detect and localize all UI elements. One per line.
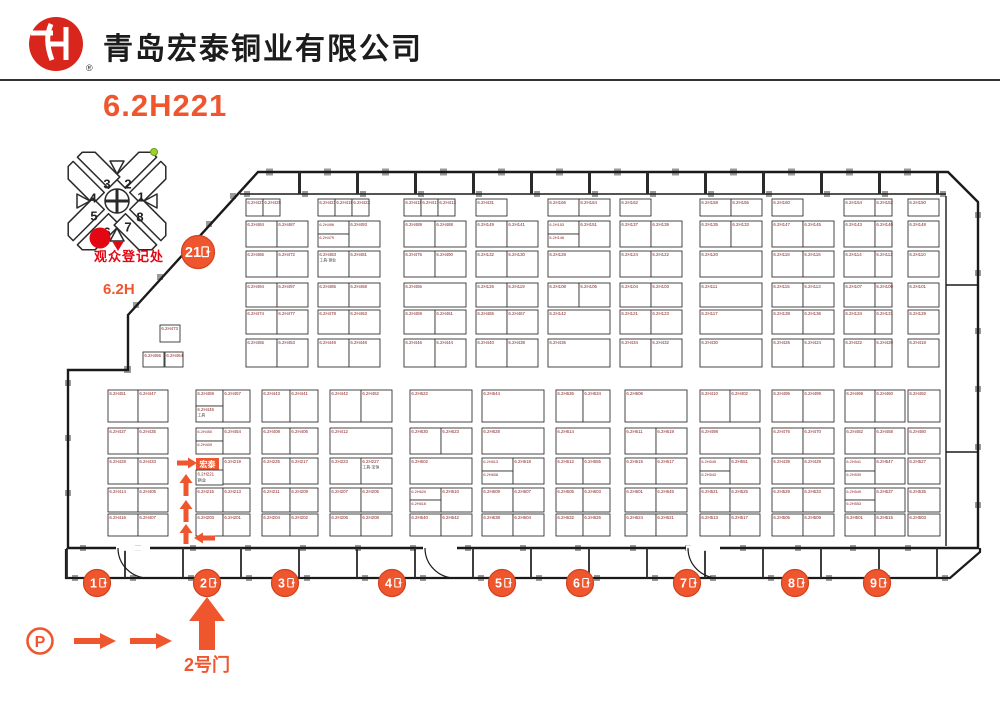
booth-cell: 6.2H164 bbox=[579, 199, 610, 216]
booth-cell: 6.2H128 bbox=[548, 251, 610, 277]
booth-cell: 6.2H461 bbox=[435, 310, 466, 334]
booth-cell: 6.2H632 bbox=[556, 514, 583, 536]
booth-cell: 6.2H478 bbox=[318, 310, 349, 334]
booth-cell: 6.2H103 bbox=[651, 283, 682, 307]
booth-cell: 6.2H418 bbox=[908, 339, 939, 367]
booth-label: 6.2H153 bbox=[549, 222, 564, 227]
booth-cell: 6.2H123 bbox=[651, 310, 682, 334]
booth-label: 6.2H150 bbox=[909, 200, 926, 205]
booth-label: 6.2H607 bbox=[514, 489, 531, 494]
booth-label: 6.2H535 bbox=[909, 489, 926, 494]
booth-label: 6.2H547 bbox=[876, 459, 893, 464]
booth-cell: 6.2H604 bbox=[513, 514, 544, 536]
booth-cell: 6.2H467 bbox=[507, 310, 538, 334]
booth-label: 6.2H156 bbox=[732, 200, 749, 205]
booth-label: 6.2H630 bbox=[411, 429, 428, 434]
gate-marker-8: 8 bbox=[782, 570, 809, 597]
booth-cell: 6.2H466 bbox=[143, 352, 164, 367]
booth-cell: 6.2H419 bbox=[335, 199, 354, 216]
page-title: 6.2H221 bbox=[103, 88, 227, 124]
booth-label: 6.2H632 bbox=[557, 515, 574, 520]
booth-cell: 6.2H535 bbox=[908, 488, 940, 512]
booth-cell: 6.2H121 bbox=[620, 310, 651, 334]
booth-cell: 6.2H457 bbox=[223, 390, 250, 422]
booth-label: 6.2H475 bbox=[405, 252, 422, 257]
booth-cell: 6.2H644 bbox=[482, 390, 544, 422]
trademark-symbol: ® bbox=[86, 63, 93, 73]
booth-cell: 6.2H455 bbox=[246, 339, 277, 367]
booth-label: 6.2H145 bbox=[804, 222, 821, 227]
booth-label: 6.2H457 bbox=[224, 391, 241, 396]
booth-label: 6.2H459 bbox=[405, 311, 422, 316]
booth-cell: 6.2H620 bbox=[410, 488, 441, 500]
booth-cell: 6.2H417 bbox=[421, 199, 440, 216]
booth-cell: 6.2H134 bbox=[844, 310, 875, 334]
booth-label: 6.2H616 bbox=[411, 501, 426, 506]
current-hall-dot bbox=[90, 228, 111, 249]
booth-label: 6.2H141 bbox=[508, 222, 525, 227]
booth-cell: 6.2H431 bbox=[476, 199, 507, 216]
booth-cell: 6.2H537 bbox=[875, 488, 905, 512]
booth-label: 6.2H201 bbox=[224, 515, 241, 520]
gate-marker-7: 7 bbox=[674, 570, 701, 597]
booth-cell: 6.2H124 bbox=[620, 251, 651, 277]
booth-cell: 6.2H541 bbox=[845, 458, 875, 471]
booth-label: 6.2H454 bbox=[224, 429, 241, 434]
booth-label: 6.2H138 bbox=[773, 311, 790, 316]
gate-marker-4: 4 bbox=[379, 570, 406, 597]
booth-label: 6.2H439 bbox=[773, 459, 790, 464]
booth-label: 6.2H601 bbox=[626, 489, 643, 494]
booth-label: 6.2H456 bbox=[405, 284, 422, 289]
booth-label: 6.2H420 bbox=[876, 340, 893, 345]
booth-cell: 6.2H428 bbox=[108, 458, 138, 484]
booth-cell: 6.2H421 bbox=[318, 199, 337, 216]
booth-cell: 6.2H412 bbox=[330, 428, 392, 454]
booth-cell: 6.2H203 bbox=[196, 514, 223, 536]
booth-label: 6.2H418 bbox=[909, 340, 926, 345]
booth-cell: 6.2H472 bbox=[277, 251, 308, 277]
booth-label: 6.2H451 bbox=[109, 391, 126, 396]
booth-cell: 6.2H609 bbox=[482, 488, 513, 512]
booth-cell: 6.2H115 bbox=[772, 283, 803, 307]
booth-cell: 6.2H425 bbox=[263, 199, 282, 216]
booth-label: 6.2H143 bbox=[845, 222, 862, 227]
booth-label: 6.2H477 bbox=[278, 311, 295, 316]
booth-label: 6.2H440 bbox=[477, 340, 494, 345]
booth-label: 6.2H612 bbox=[557, 459, 574, 464]
minimap-hall-3: 3 bbox=[103, 177, 110, 192]
booth-cell: 6.2H463 bbox=[349, 310, 380, 334]
booth-cell: 6.2H146 bbox=[548, 234, 579, 247]
booth-label: 6.2H131 bbox=[876, 311, 893, 316]
booth-cell: 6.2H110 bbox=[908, 251, 939, 277]
booth-label: 6.2H466 bbox=[144, 353, 161, 358]
minimap: 12345678 观众登记处 6.2H bbox=[62, 146, 172, 298]
booth-cell: 6.2H553 bbox=[845, 500, 875, 512]
booth-cell: 6.2H487 bbox=[277, 221, 308, 247]
booth-label: 6.2H486 bbox=[247, 252, 264, 257]
booth-label: 6.2H624 bbox=[626, 515, 643, 520]
booth-cell: 6.2H435 bbox=[138, 428, 168, 454]
route-arrow-up-3 bbox=[180, 524, 193, 544]
booth-label: 6.2H545 bbox=[701, 459, 716, 464]
booth-label: 6.2H112 bbox=[876, 252, 893, 257]
booth-label: 6.2H636 bbox=[557, 391, 574, 396]
booth-cell: 6.2H545 bbox=[700, 458, 730, 471]
booth-cell: 6.2H630 bbox=[410, 428, 441, 454]
booth-cell: 6.2H493 bbox=[349, 221, 380, 247]
booth-cell: 6.2H147 bbox=[772, 221, 803, 247]
booth-label: 6.2H101 bbox=[909, 284, 926, 289]
gate-marker-6: 6 bbox=[567, 570, 594, 597]
booth-cell: 6.2H126 bbox=[476, 283, 507, 307]
booth-label: 6.2H527 bbox=[909, 459, 926, 464]
gate2-label: 2号门 bbox=[184, 654, 230, 675]
booth-cell: 6.2H611 bbox=[625, 428, 656, 454]
booth-label: 6.2H162 bbox=[621, 200, 638, 205]
booth-label: 6.2H468 bbox=[350, 284, 367, 289]
booth-cell: 6.2H153 bbox=[548, 221, 579, 234]
gate-number: 21 bbox=[185, 245, 201, 261]
booth-cell: 6.2H225 bbox=[262, 458, 290, 484]
booth-label: 6.2H494 bbox=[247, 284, 264, 289]
booth-label: 6.2H422 bbox=[845, 340, 862, 345]
booth-label: 6.2H626 bbox=[584, 515, 601, 520]
booth-label: 6.2H166 bbox=[549, 200, 566, 205]
booth-label: 6.2H497 bbox=[278, 284, 295, 289]
booth-label: 6.2H655 bbox=[584, 459, 601, 464]
booth-cell: 6.2H114 bbox=[844, 251, 875, 277]
booth-label: 6.2H430 bbox=[701, 340, 718, 345]
booth-label: 6.2H146 bbox=[549, 235, 564, 240]
booth-cell: 6.2H622 bbox=[410, 390, 472, 422]
booth-label: 6.2H436 bbox=[549, 340, 566, 345]
page: 12345678 观众登记处 6.2H bbox=[0, 0, 1000, 701]
booth-label: 6.2H472 bbox=[278, 252, 295, 257]
booth-cell: 6.2H459 bbox=[196, 390, 223, 406]
booth-label: 6.2H205 bbox=[362, 489, 379, 494]
booth-cell: 6.2H450 bbox=[196, 428, 223, 441]
booth-label: 6.2H136 bbox=[804, 311, 821, 316]
booth-cell: 6.2H145 bbox=[803, 221, 834, 247]
booth-cell: 6.2H642 bbox=[441, 514, 472, 536]
booth-cell: 6.2H452 bbox=[361, 390, 392, 422]
booth-label: 6.2H409 bbox=[197, 442, 212, 447]
booth-cell: 6.2H602 bbox=[410, 458, 472, 484]
booth-cell: 6.2H440 bbox=[476, 339, 507, 367]
booth-label: 6.2H634 bbox=[584, 391, 601, 396]
booth-cell: 6.2H482 bbox=[845, 428, 875, 454]
booth-cell: 6.2H489 bbox=[404, 221, 435, 247]
booth-cell: 6.2H605 bbox=[556, 488, 583, 512]
booth-cell: 6.2H543 bbox=[700, 471, 730, 484]
booth-cell: 6.2H436 bbox=[548, 339, 610, 367]
booth-cell: 6.2H603 bbox=[583, 488, 610, 512]
booth-label: 6.2H149 bbox=[477, 222, 494, 227]
booth-cell: 6.2H655 bbox=[583, 458, 610, 484]
booth-cell: 6.2H628 bbox=[482, 428, 544, 454]
booth-cell: 6.2H454 bbox=[223, 428, 250, 454]
booth-cell: 6.2H619 bbox=[656, 428, 687, 454]
booth-cell: 6.2H623 bbox=[441, 428, 472, 454]
booth-cell: 6.2H433 bbox=[138, 458, 168, 484]
booth-label: 6.2H432 bbox=[652, 340, 669, 345]
booth-label: 6.2H116 bbox=[804, 252, 821, 257]
booth-cell: 6.2H416 bbox=[108, 514, 138, 536]
booth-label: 6.2H105 bbox=[580, 284, 597, 289]
booth-cell: 6.2H109 bbox=[875, 283, 894, 307]
booth-cell: 6.2H485 bbox=[318, 283, 349, 307]
booth-cell: 6.2H202 bbox=[290, 514, 318, 536]
booth-cell: 6.2H141 bbox=[507, 221, 538, 247]
booth-cell: 6.2H498 bbox=[700, 428, 760, 454]
highlight-booth-no: 6.2H221 bbox=[198, 471, 215, 476]
booth-cell: 6.2H615 bbox=[625, 458, 656, 484]
booth-cell: 6.2H613 bbox=[482, 458, 513, 471]
booth-cell: 6.2H469 bbox=[845, 390, 875, 422]
booth-label: 6.2H427 bbox=[247, 200, 264, 205]
booth-cell: 6.2H217 bbox=[290, 458, 318, 484]
booth-label: 6.2H501 bbox=[846, 515, 863, 520]
booth-label: 6.2H407 bbox=[139, 515, 156, 520]
booth-cell: 6.2H539 bbox=[845, 471, 875, 484]
booth-cell: 6.2H634 bbox=[583, 390, 610, 422]
booth-label: 6.2H617 bbox=[657, 459, 674, 464]
booth-cell: 6.2H451 bbox=[108, 390, 138, 422]
booth-label: 6.2H140 bbox=[876, 222, 893, 227]
booth-cell: 6.2H438 bbox=[507, 339, 538, 367]
booth-label: 6.2H645 bbox=[657, 489, 674, 494]
booth-cell: 6.2H486 bbox=[246, 251, 277, 277]
booth-cell: 6.2H410 bbox=[700, 390, 730, 422]
booth-cell: 6.2H474 bbox=[246, 310, 277, 334]
booth-label: 6.2H109 bbox=[876, 284, 893, 289]
booth-cell: 6.2H156 bbox=[731, 199, 762, 216]
booth-label: 6.2H521 bbox=[701, 489, 718, 494]
booth-cell: 6.2H501 bbox=[845, 514, 875, 536]
booth-label: 6.2H539 bbox=[846, 472, 861, 477]
booth-cell: 6.2H497 bbox=[277, 283, 308, 307]
booth-label: 6.2H438 bbox=[508, 340, 525, 345]
route-arrow-right bbox=[177, 458, 197, 469]
booth-label: 6.2H484 bbox=[247, 222, 264, 227]
header-divider bbox=[0, 79, 1000, 81]
booth-cell: 6.2H113 bbox=[803, 283, 834, 307]
booth-cell: 6.2H525 bbox=[730, 488, 760, 512]
booth-cell: 6.2H107 bbox=[844, 283, 875, 307]
booth-label: 6.2H623 bbox=[442, 429, 459, 434]
booth-cell: 6.2H645 bbox=[656, 488, 687, 512]
booth-cell: 6.2H143 bbox=[844, 221, 875, 247]
booth-label: 6.2H107 bbox=[845, 284, 862, 289]
footer-graphics: 2号门 P bbox=[28, 597, 231, 675]
booth-cell: 6.2H206 bbox=[330, 514, 361, 536]
booth-cell: 6.2H160 bbox=[772, 199, 803, 216]
booth-label: 6.2H543 bbox=[701, 472, 716, 477]
booth-cell: 6.2H130 bbox=[507, 251, 538, 277]
gate-marker-2: 2 bbox=[194, 570, 221, 597]
booth-label: 6.2H498 bbox=[701, 429, 718, 434]
booth-label: 6.2H211 bbox=[263, 489, 280, 494]
booth-cell: 6.2H209 bbox=[290, 488, 318, 512]
booth-label: 6.2H492 bbox=[909, 391, 926, 396]
minimap-hall-5: 5 bbox=[90, 209, 97, 224]
booth-label: 6.2H158 bbox=[701, 200, 718, 205]
booth-label: 6.2H442 bbox=[331, 391, 348, 396]
booth-cell: 6.2H136 bbox=[803, 310, 834, 334]
booth-label: 6.2H541 bbox=[846, 459, 861, 464]
booth-cell: 6.2H636 bbox=[556, 390, 583, 422]
booth-cell: 6.2H494 bbox=[246, 283, 277, 307]
booth-cell: 6.2H138 bbox=[772, 310, 803, 334]
booth-label: 6.2H154 bbox=[845, 200, 862, 205]
booth-label: 6.2H485 bbox=[319, 284, 336, 289]
booth-label: 6.2H435 bbox=[139, 429, 156, 434]
booth-cell: 6.2H131 bbox=[875, 310, 894, 334]
booth-label: 6.2H489 bbox=[405, 222, 422, 227]
booth-sublabel: 工具·宝恒 bbox=[362, 465, 379, 470]
gate-number: 3 bbox=[278, 577, 285, 591]
booth-label: 6.2H605 bbox=[557, 489, 574, 494]
booth-label: 6.2H104 bbox=[621, 284, 638, 289]
booth-label: 6.2H209 bbox=[291, 489, 308, 494]
booth-label: 6.2H470 bbox=[804, 429, 821, 434]
booth-cell: 6.2H448 bbox=[349, 339, 380, 367]
booth-cell: 6.2H151 bbox=[579, 221, 610, 247]
booth-cell: 6.2H618 bbox=[513, 458, 544, 484]
booth-cell: 6.2H521 bbox=[700, 488, 730, 512]
booth-label: 6.2H202 bbox=[291, 515, 308, 520]
booth-label: 6.2H123 bbox=[652, 311, 669, 316]
gate-number: 7 bbox=[680, 577, 687, 591]
booth-cell: 6.2H205 bbox=[361, 488, 392, 512]
gate-marker-3: 3 bbox=[272, 570, 299, 597]
booth-label: 6.2H464 bbox=[166, 353, 183, 358]
booth-cell: 6.2H640 bbox=[410, 514, 441, 536]
booth-cell: 6.2H470 bbox=[803, 428, 834, 454]
booth-cell: 6.2H112 bbox=[875, 251, 893, 277]
booth-cell: 6.2H437 bbox=[108, 428, 138, 454]
booth-label: 6.2H132 bbox=[477, 252, 494, 257]
booth-label: 6.2H483 bbox=[319, 252, 336, 257]
highlight-industry: 铜业 bbox=[198, 477, 206, 484]
booth-label: 6.2H215 bbox=[197, 489, 214, 494]
booth-label: 6.2H213 bbox=[224, 489, 241, 494]
booth-label: 6.2H481 bbox=[350, 252, 367, 257]
booth-label: 6.2H482 bbox=[846, 429, 863, 434]
booth-label: 6.2H134 bbox=[845, 311, 862, 316]
minimap-hall-label: 6.2H bbox=[103, 281, 135, 298]
booth-label: 6.2H120 bbox=[701, 252, 718, 257]
booth-label: 6.2H429 bbox=[804, 459, 821, 464]
booth-label: 6.2H606 bbox=[626, 391, 643, 396]
booth-cell: 6.2H409 bbox=[196, 441, 223, 454]
booth-label: 6.2H111 bbox=[701, 284, 718, 289]
booth-cell: 6.2H459 bbox=[404, 310, 435, 334]
booth-cell: 6.2H223 bbox=[330, 458, 361, 484]
booth-label: 6.2H447 bbox=[139, 391, 156, 396]
booth-cell: 6.2H601 bbox=[625, 488, 656, 512]
booth-cell: 6.2H137 bbox=[620, 221, 651, 247]
booth-label: 6.2H113 bbox=[804, 284, 821, 289]
booth-cell: 6.2H119 bbox=[507, 283, 538, 307]
booth-cell: 6.2H638 bbox=[482, 514, 513, 536]
booth-label: 6.2H133 bbox=[732, 222, 749, 227]
booth-cell: 6.2H104 bbox=[620, 283, 651, 307]
booth-label: 6.2H463 bbox=[350, 311, 367, 316]
booth-label: 6.2H115 bbox=[773, 284, 790, 289]
booth-label: 6.2H223 bbox=[331, 459, 348, 464]
booth-cell: 6.2H129 bbox=[908, 310, 939, 334]
booth-label: 6.2H445 bbox=[197, 407, 214, 412]
booth-label: 6.2H461 bbox=[436, 311, 453, 316]
booth-label: 6.2H613 bbox=[483, 459, 498, 464]
booth-cell: 6.2H505 bbox=[772, 514, 803, 536]
booth-cell: 6.2H479 bbox=[318, 234, 349, 247]
booth-label: 6.2H490 bbox=[436, 252, 453, 257]
booth-cell: 6.2H441 bbox=[290, 390, 318, 422]
booth-cell: 6.2H533 bbox=[803, 488, 834, 512]
company-name: 青岛宏泰铜业有限公司 bbox=[103, 24, 423, 68]
booth-cell: 6.2H142 bbox=[548, 310, 610, 334]
booth-label: 6.2H412 bbox=[331, 429, 348, 434]
booth-cell: 6.2H488 bbox=[435, 221, 466, 247]
booth-label: 6.2H413 bbox=[439, 200, 456, 205]
booth-cell: 6.2H445工具 bbox=[196, 406, 223, 422]
booth-label: 6.2H414 bbox=[109, 489, 126, 494]
booth-cell: 6.2H460 bbox=[875, 390, 905, 422]
booth-cell: 6.2H204 bbox=[262, 514, 290, 536]
booth-label: 6.2H203 bbox=[197, 515, 214, 520]
booth-sublabel: 工具 bbox=[197, 413, 205, 418]
approach-arrow-1 bbox=[74, 633, 116, 649]
booth-cell: 6.2H549 bbox=[845, 488, 875, 500]
booth-cell: 6.2H154 bbox=[844, 199, 875, 216]
booth-cell: 6.2H111 bbox=[700, 283, 762, 307]
booth-label: 6.2H402 bbox=[731, 391, 748, 396]
booth-cell: 6.2H444 bbox=[435, 339, 466, 367]
booth-label: 6.2H549 bbox=[846, 489, 861, 494]
booth-cell: 6.2H456 bbox=[404, 283, 466, 307]
booth-label: 6.2H619 bbox=[657, 429, 674, 434]
booth-label: 6.2H614 bbox=[557, 429, 574, 434]
booth-cell: 6.2H422 bbox=[844, 339, 875, 367]
booth-cell: 6.2H148 bbox=[908, 221, 939, 247]
booth-cell: 6.2H426 bbox=[772, 339, 803, 367]
gate-marker-9: 9 bbox=[864, 570, 891, 597]
booth-cell: 6.2H101 bbox=[908, 283, 939, 307]
booth-sublabel: 工具·铜业 bbox=[319, 258, 336, 263]
booth-label: 6.2H469 bbox=[846, 391, 863, 396]
booth-cell: 6.2H211 bbox=[262, 488, 290, 512]
booth-cell: 6.2H614 bbox=[556, 428, 610, 454]
gate-number: 8 bbox=[788, 577, 795, 591]
booth-label: 6.2H458 bbox=[876, 429, 893, 434]
booth-cell: 6.2H158 bbox=[700, 199, 731, 216]
booth-cell: 6.2H443 bbox=[262, 390, 290, 422]
gate2-big-arrow bbox=[189, 597, 225, 650]
booth-cell: 6.2H139 bbox=[651, 221, 682, 247]
booth-cell: 6.2H624 bbox=[625, 514, 656, 536]
booth-cell: 6.2H439 bbox=[772, 458, 803, 484]
booth-label: 6.2H503 bbox=[909, 515, 926, 520]
booth-cell: 6.2H406 bbox=[290, 428, 318, 454]
registration-label: 观众登记处 bbox=[94, 249, 164, 264]
booth-label: 6.2H495 bbox=[773, 391, 790, 396]
booth-cell: 6.2H464 bbox=[165, 352, 184, 367]
booth-label: 6.2H603 bbox=[584, 489, 601, 494]
